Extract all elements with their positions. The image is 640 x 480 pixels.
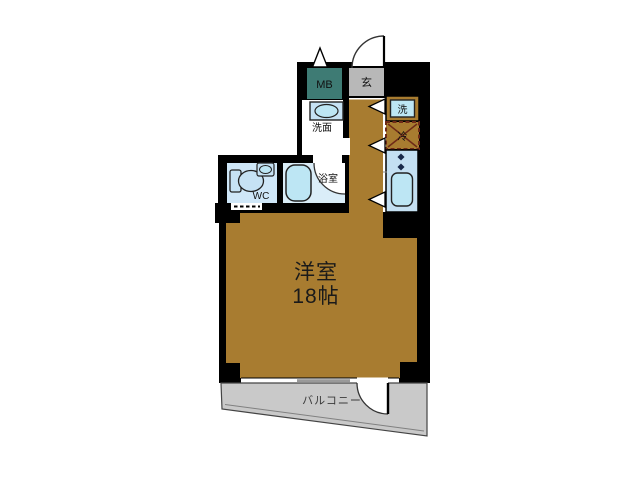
meter-box-label: MB bbox=[316, 79, 333, 91]
window-sash bbox=[297, 379, 350, 382]
washroom-door-opening bbox=[341, 138, 350, 155]
washroom-label: 洗面 bbox=[312, 122, 332, 134]
wc-label: WC bbox=[253, 191, 270, 202]
balcony-label: バルコニー bbox=[302, 394, 362, 407]
washroom-area: 洗面 bbox=[302, 100, 350, 155]
floor-plan-drawing: 玄 MB 洗面 洗 冷 bbox=[0, 0, 640, 480]
fridge-label: 冷 bbox=[398, 130, 408, 143]
bathtub-icon bbox=[286, 165, 311, 201]
bathroom-door-opening bbox=[313, 155, 342, 163]
main-room-area: 洋室 18帖 bbox=[292, 261, 339, 308]
wc-area: WC bbox=[227, 163, 277, 210]
kitchen-column: 洗 冷 bbox=[383, 96, 419, 212]
entrance-label: 玄 bbox=[361, 75, 372, 89]
pipe-marker-icon bbox=[313, 48, 328, 67]
washer-label: 洗 bbox=[398, 104, 408, 116]
balcony-floor bbox=[221, 383, 427, 436]
main-room-name: 洋室 bbox=[294, 261, 338, 284]
main-room-size: 18帖 bbox=[292, 285, 339, 308]
vanity-sink-icon bbox=[315, 105, 338, 118]
balcony-door-opening bbox=[357, 378, 388, 384]
kitchen-sink-icon bbox=[392, 173, 413, 206]
bathroom-label: 浴室 bbox=[318, 172, 338, 185]
balcony-area: バルコニー bbox=[221, 378, 427, 437]
meter-box-area: MB bbox=[306, 48, 343, 100]
floor-plan-page: 玄 MB 洗面 洗 冷 bbox=[0, 0, 640, 480]
corner-sink-bowl-icon bbox=[260, 166, 272, 174]
entrance-area: 玄 bbox=[348, 36, 385, 97]
